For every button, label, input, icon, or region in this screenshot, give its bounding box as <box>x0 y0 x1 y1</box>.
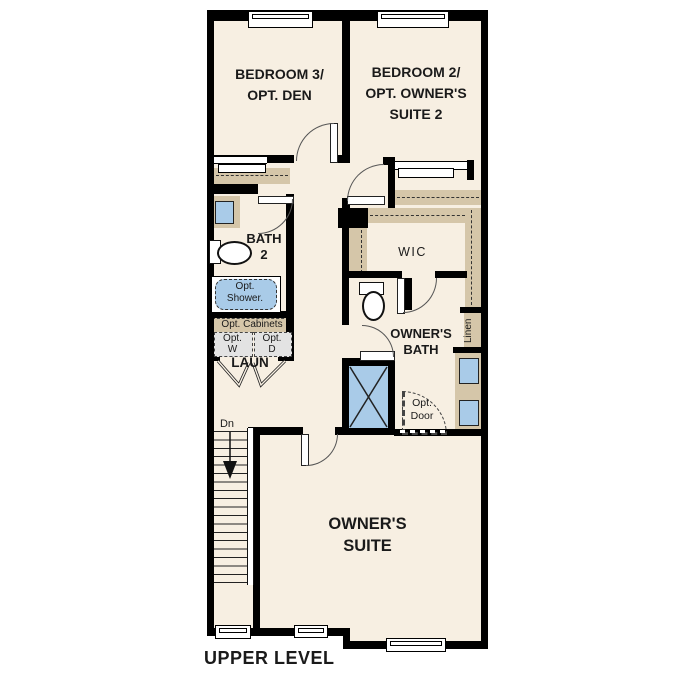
page-title: UPPER LEVEL <box>204 648 424 670</box>
room-label-wic: WIC <box>380 245 445 260</box>
room-label-line: OWNER'S <box>383 326 459 342</box>
room-label-line: OPT. DEN <box>212 85 347 106</box>
annotation-line: W <box>214 344 251 355</box>
room-label-line: SUITE 2 <box>350 104 482 125</box>
stairs-dn-label: Dn <box>214 418 240 431</box>
room-label-line: BEDROOM 2/ <box>350 62 482 83</box>
room-label-line: BATH <box>383 342 459 358</box>
room-label-bath2: BATH 2 <box>234 231 294 263</box>
room-label-line: OWNER'S <box>300 513 435 535</box>
opt-door-label: Opt. Door <box>399 397 445 423</box>
room-label-bedroom3: BEDROOM 3/ OPT. DEN <box>212 64 347 106</box>
room-label-line: OPT. OWNER'S <box>350 83 482 104</box>
stair-down-arrow <box>223 461 237 479</box>
floor-plan: BEDROOM 3/ OPT. DEN BEDROOM 2/ OPT. OWNE… <box>0 0 687 687</box>
room-label-line: 2 <box>234 247 294 263</box>
opt-shower-label: Opt. Shower. <box>215 281 275 305</box>
room-label-laundry: LAUN <box>206 355 294 371</box>
annotation-line: Shower. <box>215 293 275 305</box>
room-label-line: BEDROOM 3/ <box>212 64 347 85</box>
annotation-line: D <box>254 344 290 355</box>
annotation-line: Opt. <box>214 333 251 344</box>
opt-washer-label: Opt. W <box>214 333 251 355</box>
annotation-line: Door <box>399 410 445 423</box>
room-label-owners-bath: OWNER'S BATH <box>383 326 459 358</box>
room-label-bedroom2: BEDROOM 2/ OPT. OWNER'S SUITE 2 <box>350 62 482 125</box>
annotation-line: Opt. <box>254 333 290 344</box>
room-label-owners-suite: OWNER'S SUITE <box>300 513 435 557</box>
room-label-line: SUITE <box>300 535 435 557</box>
linen-label: Linen <box>463 314 482 347</box>
opt-cabinets-label: Opt. Cabinets <box>212 319 292 331</box>
annotation-line: Opt. <box>215 281 275 293</box>
opt-dryer-label: Opt. D <box>254 333 290 355</box>
room-label-line: BATH <box>234 231 294 247</box>
annotation-line: Opt. <box>399 397 445 410</box>
